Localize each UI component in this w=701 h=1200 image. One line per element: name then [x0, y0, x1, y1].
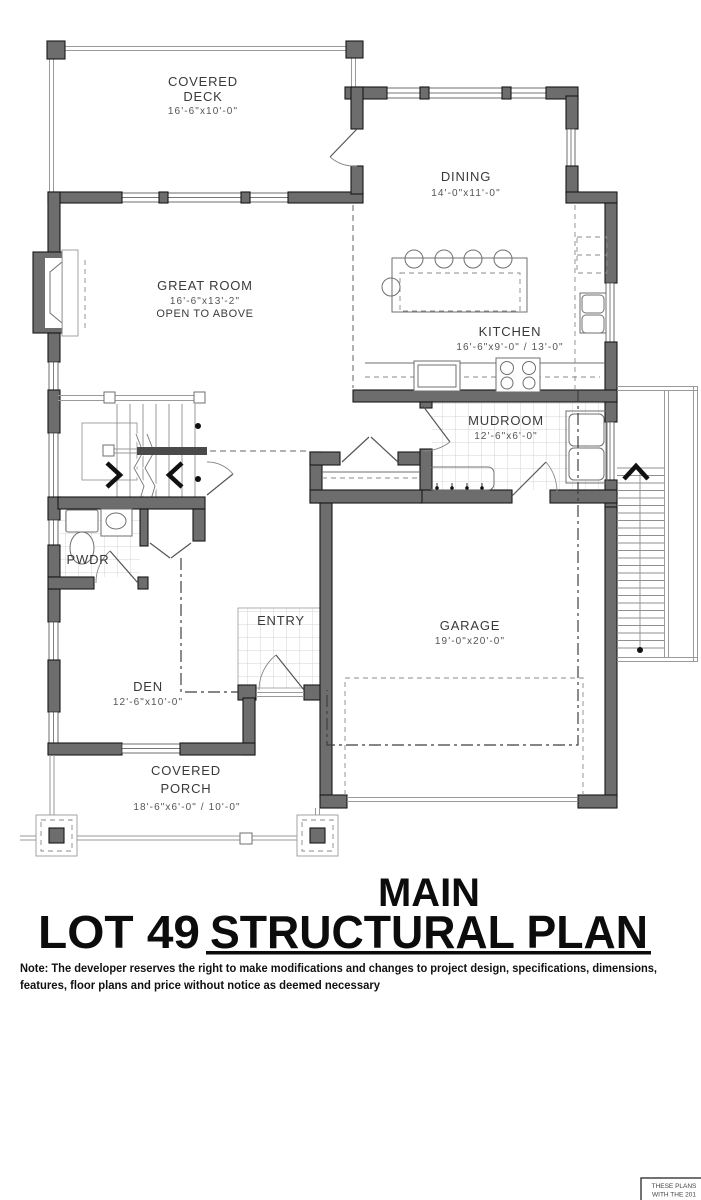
dining-label: DINING: [441, 169, 491, 184]
stair-guard-wall: [137, 447, 207, 455]
exterior-stairs: [617, 386, 698, 662]
rail-post: [240, 833, 252, 844]
sink-icon: [101, 509, 132, 536]
mudroom-dims: 12'-6"x6'-0": [474, 431, 538, 442]
title-block: MAIN LOT 49 STRUCTURAL PLAN Note: The de…: [20, 871, 657, 992]
closet-bifold-doors: [150, 543, 191, 558]
plan-type-title: STRUCTURAL PLAN: [210, 906, 648, 958]
stamp-line-2: WITH THE 201: [652, 1192, 696, 1199]
kitchen-dims: 16'-6"x9'-0" / 13'-0": [456, 342, 563, 353]
stairs-down-arrow-icon: [107, 463, 120, 487]
covered-deck-label: DECK: [183, 89, 222, 104]
kitchen-island: [382, 250, 527, 312]
interior-stairs: [58, 392, 308, 509]
entry-label: ENTRY: [257, 613, 305, 628]
plan-stamp: THESE PLANS WITH THE 201: [641, 1178, 701, 1200]
left-exterior-wall: [33, 192, 85, 743]
kitchen-fixtures: [353, 205, 617, 402]
great-room-dims: 16'-6"x13'-2": [170, 296, 240, 307]
closet-double-doors: [342, 437, 398, 462]
great-room-label: GREAT ROOM: [157, 278, 253, 293]
porch-column: [36, 815, 77, 856]
den-dims: 12'-6"x10'-0": [113, 697, 183, 708]
dining-walls: [330, 87, 617, 203]
great-room-top-wall: [48, 192, 363, 203]
newel-post: [104, 392, 115, 403]
open-to-above-note: OPEN TO ABOVE: [156, 308, 253, 320]
covered-porch-label: COVERED: [151, 763, 221, 778]
fireplace: [33, 250, 85, 336]
kitchen-label: KITCHEN: [479, 324, 542, 339]
garage-hall-closet: [310, 437, 422, 503]
newel-post: [194, 392, 205, 403]
exterior-stair-treads: [617, 468, 664, 648]
deck-door-swing: [330, 129, 357, 166]
hall-door-swing: [207, 462, 233, 495]
stamp-line-1: THESE PLANS: [652, 1183, 697, 1190]
den-label: DEN: [133, 679, 163, 694]
deck-post: [47, 41, 65, 59]
stairs-up-arrow-icon: [169, 463, 182, 487]
stairs-bottom-wall: [58, 497, 205, 509]
dining-dims: 14'-0"x11'-0": [431, 188, 501, 199]
newel-post: [103, 445, 114, 456]
disclaimer-line-1: Note: The developer reserves the right t…: [20, 961, 657, 975]
fridge-icon: [580, 293, 606, 333]
title-underline: [206, 951, 651, 955]
den-hall-boundary: [181, 558, 238, 692]
disclaimer-line-2: features, floor plans and price without …: [20, 978, 380, 992]
garage-label: GARAGE: [440, 618, 500, 633]
deck-post: [346, 41, 363, 58]
garage-dims: 19'-0"x20'-0": [435, 636, 505, 647]
covered-deck-label: COVERED: [168, 74, 238, 89]
porch-column: [297, 815, 338, 856]
garage-apron-dashed: [345, 678, 583, 795]
stove-icon: [496, 358, 540, 392]
covered-deck-dims: 16'-6"x10'-0": [168, 106, 238, 117]
pantry-dashed: [577, 237, 607, 273]
lot-number-title: LOT 49: [38, 906, 200, 958]
structural-floor-plan: COVERED DECK 16'-6"x10'-0" DINING 14'-0"…: [0, 0, 701, 1200]
mudroom-label: MUDROOM: [468, 413, 544, 428]
covered-porch-label: PORCH: [161, 781, 212, 796]
pwdr-label: PWDR: [67, 552, 110, 567]
covered-porch-dims: 18'-6"x6'-0" / 10'-0": [133, 802, 240, 813]
